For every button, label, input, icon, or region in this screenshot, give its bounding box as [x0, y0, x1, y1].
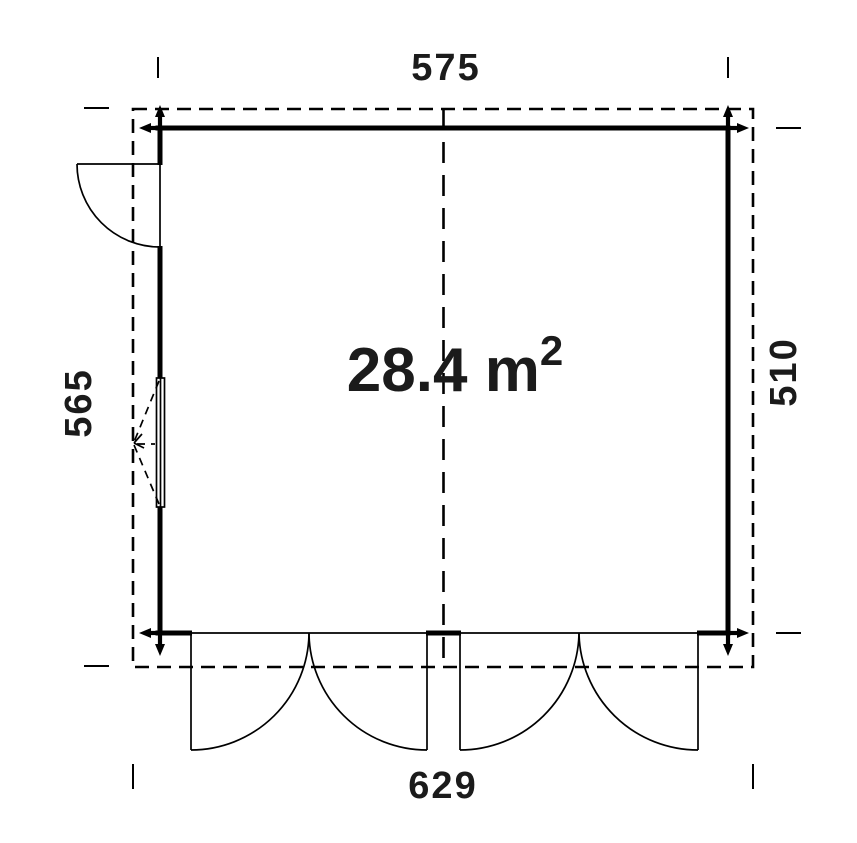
double-door-left	[191, 633, 427, 750]
window-symbol	[134, 378, 165, 507]
floor-plan-drawing: 575 629 565 510 28.4 m2	[0, 0, 857, 843]
door-swing-arc-4	[579, 633, 698, 750]
door-swing-arc-2	[309, 633, 427, 750]
corner-arrow-bottom-left	[139, 628, 165, 656]
door-swing-arc-3	[460, 633, 579, 750]
dim-label-left: 565	[58, 368, 100, 437]
window-opening-dash-lower	[134, 445, 159, 504]
dimension-right: 510	[763, 128, 805, 633]
dim-label-top: 575	[411, 47, 480, 89]
double-door-right	[460, 633, 698, 750]
corner-arrow-bottom-right	[723, 628, 749, 656]
dim-label-bottom: 629	[408, 765, 477, 807]
window-opening-dash-upper	[134, 381, 159, 442]
area-superscript: 2	[540, 327, 563, 374]
dimension-left: 565	[58, 108, 109, 666]
door-swing-arc-1	[191, 633, 309, 750]
dimension-bottom: 629	[133, 764, 753, 807]
dim-label-right: 510	[763, 337, 805, 406]
entrance-door	[77, 164, 160, 247]
floor-plan-page: 575 629 565 510 28.4 m2	[0, 0, 857, 843]
area-value: 28.4 m2	[347, 327, 563, 405]
area-label: 28.4 m2	[347, 327, 563, 405]
dimension-top: 575	[158, 47, 728, 89]
entrance-door-swing-arc	[77, 164, 160, 247]
